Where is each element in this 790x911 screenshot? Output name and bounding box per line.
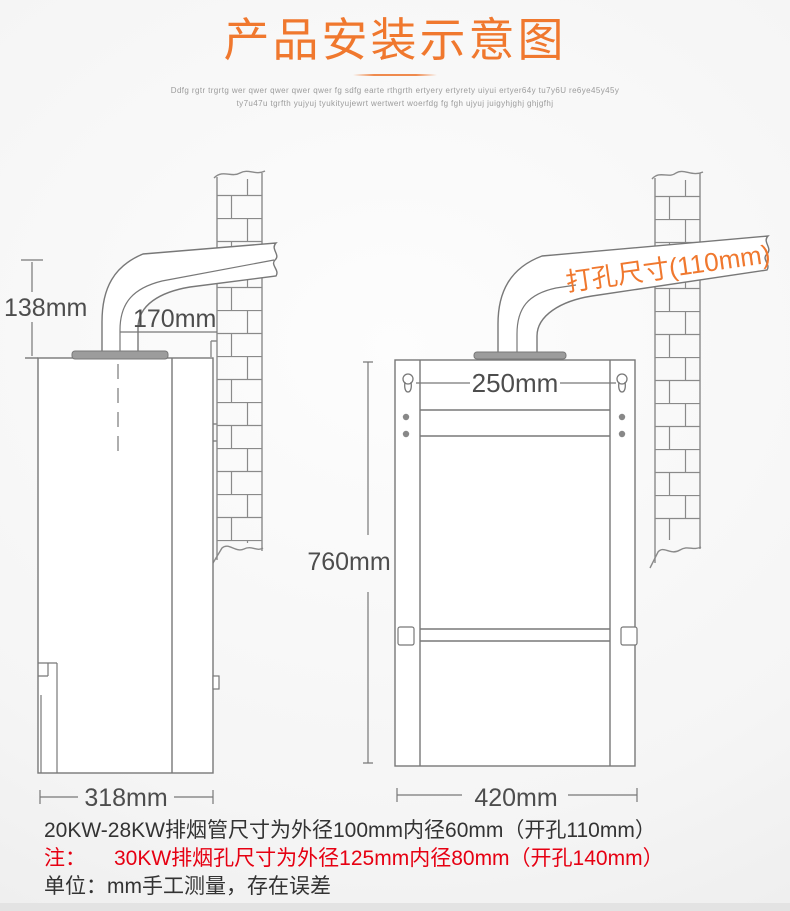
dim-label-420mm: 420mm (474, 784, 557, 812)
product-install-diagram-page: 产品安装示意图 Ddfg rgtr trgrtg wer qwer qwer q… (0, 0, 790, 911)
pipe-flange-side (72, 351, 168, 359)
pipe-flange-front (474, 352, 566, 359)
spec-notes: 20KW-28KW排烟管尺寸为外径100mm内径60mm（开孔110mm） 注：… (44, 817, 774, 901)
bracket-clip-left (398, 627, 414, 645)
brick-wall-left (211, 171, 265, 563)
note-spec-20-28kw: 20KW-28KW排烟管尺寸为外径100mm内径60mm（开孔110mm） (44, 817, 774, 845)
dim-label-760mm: 760mm (307, 548, 390, 576)
note-label: 注： (44, 847, 86, 870)
dim-label-138mm: 138mm (4, 294, 87, 322)
brick-wall-right (650, 171, 703, 568)
note-spec-30kw-text: 30KW排烟孔尺寸为外径125mm内径80mm（开孔140mm） (114, 847, 664, 870)
dim-label-170mm: 170mm (133, 305, 216, 333)
note-unit: 单位：mm手工测量，存在误差 (44, 873, 774, 901)
mounting-bracket-front (395, 352, 637, 766)
installation-diagram: 138mm 170mm 318mm 250mm 760mm 420mm 打孔尺寸… (0, 0, 790, 911)
bracket-clip-right (621, 627, 637, 645)
heater-body-side (25, 351, 219, 773)
bottom-separator-bar (0, 903, 790, 911)
note-spec-30kw: 注：30KW排烟孔尺寸为外径125mm内径80mm（开孔140mm） (44, 845, 774, 873)
dim-label-250mm: 250mm (472, 368, 559, 398)
dim-label-318mm: 318mm (84, 784, 167, 812)
